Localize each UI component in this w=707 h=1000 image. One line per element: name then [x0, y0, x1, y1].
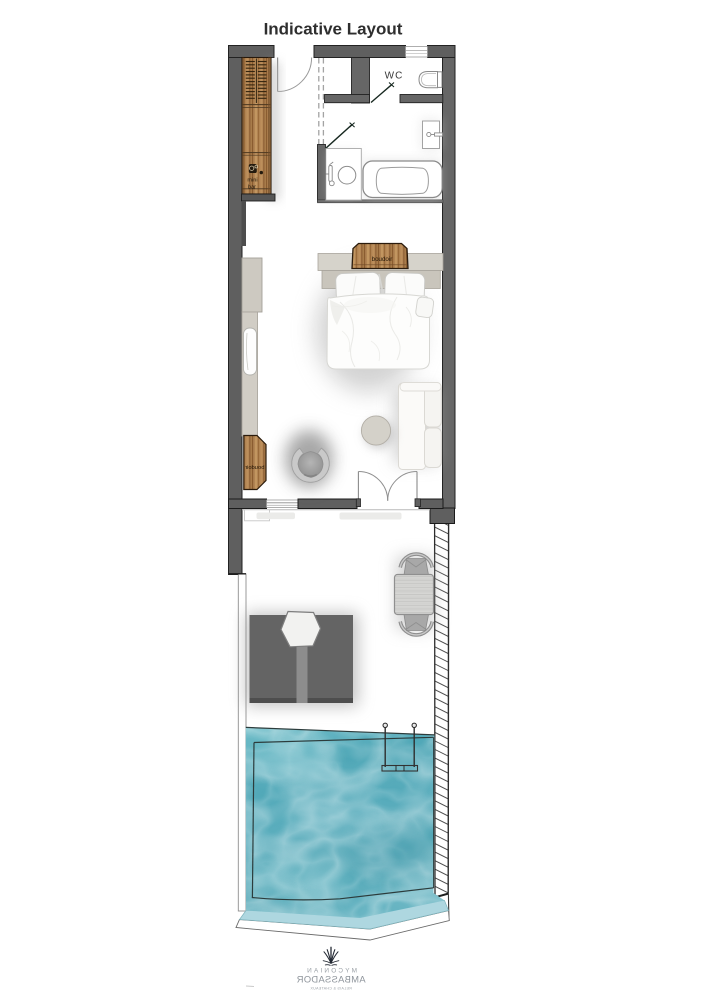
- svg-text:bar: bar: [248, 185, 256, 191]
- svg-text:AMBASSADOR: AMBASSADOR: [296, 974, 365, 985]
- svg-text:Indicative Layout: Indicative Layout: [264, 20, 403, 39]
- svg-text:boudoir: boudoir: [372, 256, 393, 263]
- svg-text:WC: WC: [385, 71, 404, 82]
- svg-text:boudoir: boudoir: [245, 465, 264, 471]
- svg-text:RELAIS & CHATEAUX: RELAIS & CHATEAUX: [310, 986, 352, 990]
- svg-text:mini: mini: [247, 178, 257, 184]
